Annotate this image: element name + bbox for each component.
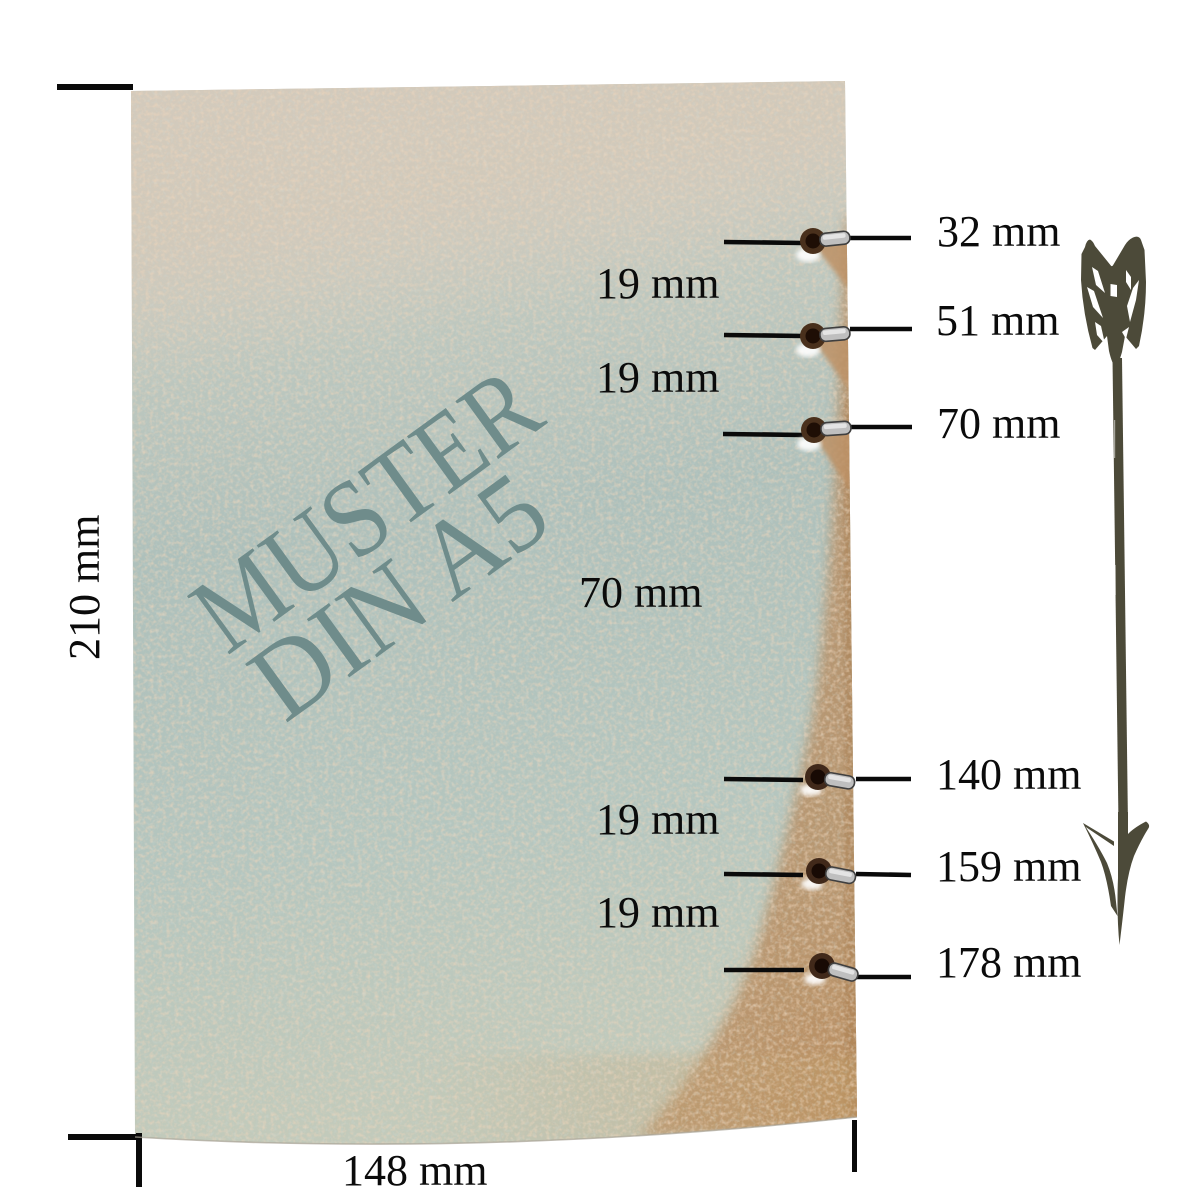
svg-text:148 mm: 148 mm: [342, 1146, 487, 1195]
svg-text:19 mm: 19 mm: [596, 259, 719, 308]
svg-text:70 mm: 70 mm: [579, 568, 702, 617]
svg-text:19 mm: 19 mm: [596, 795, 719, 844]
svg-text:178 mm: 178 mm: [936, 938, 1081, 987]
svg-text:51 mm: 51 mm: [936, 296, 1059, 345]
svg-text:19 mm: 19 mm: [596, 888, 719, 937]
svg-text:70 mm: 70 mm: [937, 399, 1060, 448]
svg-text:19 mm: 19 mm: [596, 353, 719, 402]
svg-text:140 mm: 140 mm: [936, 750, 1081, 799]
svg-text:159 mm: 159 mm: [936, 842, 1081, 891]
svg-text:210 mm: 210 mm: [60, 515, 109, 660]
svg-text:32 mm: 32 mm: [937, 207, 1060, 256]
